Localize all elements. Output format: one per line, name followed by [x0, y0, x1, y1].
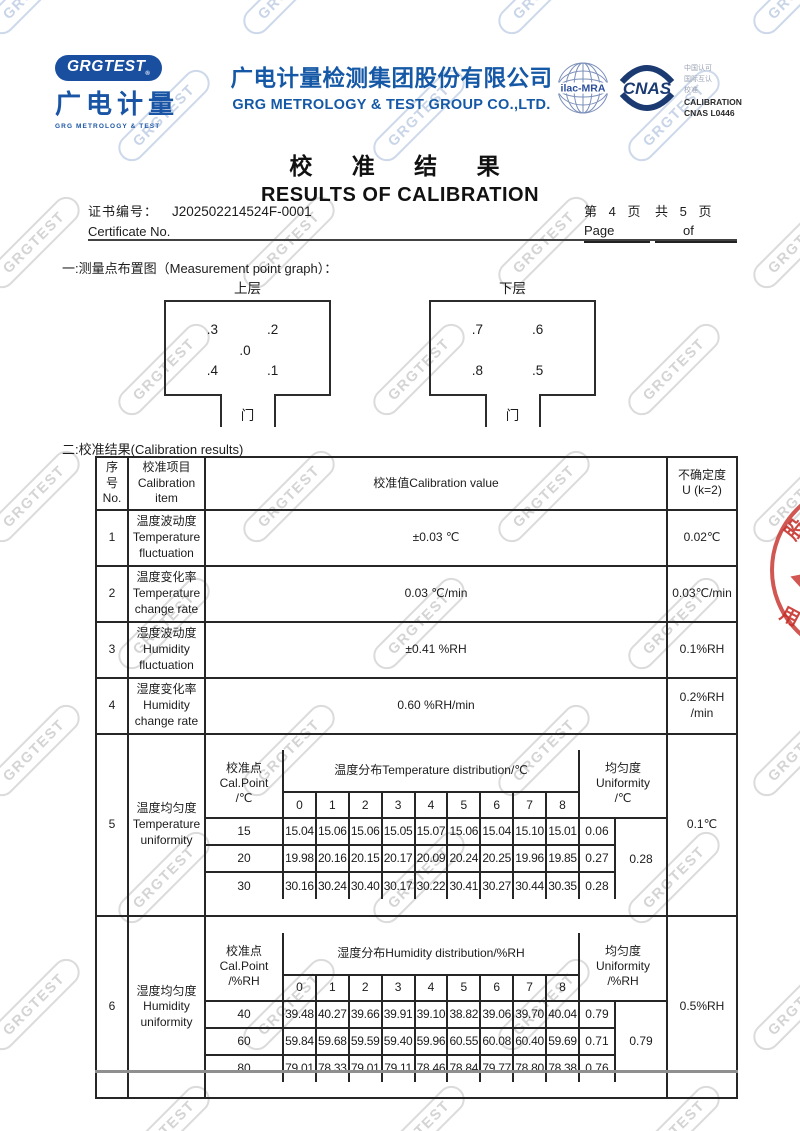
cnas-logo-icon: CNAS — [615, 61, 679, 115]
table-row: 4 湿度变化率 Humidity change rate 0.60 %RH/mi… — [96, 678, 737, 734]
point-index: 3 — [382, 975, 415, 1001]
distribution-header: 湿度分布Humidity distribution/%RH — [283, 933, 579, 975]
distribution-value-cell: 39.06 — [480, 1001, 513, 1028]
point-index: 7 — [513, 975, 546, 1001]
distribution-value-cell: 15.06 — [316, 818, 349, 845]
nested-header-row: 校准点 Cal.Point /℃ 温度分布Temperature distrib… — [206, 750, 666, 792]
uncertainty-cell: 0.1%RH — [667, 622, 737, 678]
distribution-rows: 1515.0415.0615.0615.0515.0715.0615.0415.… — [206, 818, 666, 899]
cnas-number: CNAS L0446 — [684, 108, 742, 120]
calibration-certificate-page: GRGTESTGRGTESTGRGTESTGRGTESTGRGTESTGRGTE… — [0, 0, 800, 1131]
distribution-row: 1515.0415.0615.0615.0515.0715.0615.0415.… — [206, 818, 666, 845]
calibration-item-cell: 湿度波动度 Humidity fluctuation — [128, 622, 205, 678]
distribution-row: 3030.1630.2430.4030.1730.2230.4130.2730.… — [206, 872, 666, 899]
upper-layer-diagram: 上层 .3 .2 .0 .4 .1 门 — [164, 277, 331, 396]
distribution-value-cell: 20.24 — [447, 845, 480, 872]
accreditation-line2: 国际互认 — [684, 74, 742, 85]
row-number-cell: 3 — [96, 622, 128, 678]
distribution-value-cell: 39.91 — [382, 1001, 415, 1028]
lower-layer-box: .7 .6 .8 .5 门 — [429, 300, 596, 396]
calibration-label: CALIBRATION — [684, 97, 742, 109]
certificate-label-en: Certificate No. — [88, 224, 312, 239]
certificate-number: J202502214524F-0001 — [172, 204, 312, 219]
door-label: 门 — [241, 404, 255, 424]
cal-point-value-cell: 15 — [206, 818, 283, 845]
distribution-value-cell: 15.07 — [415, 818, 448, 845]
table-header-row: 序 号 No. 校准项目 Calibration item 校准值Calibra… — [96, 457, 737, 510]
grgtest-badge-text: GRGTEST — [67, 58, 145, 75]
header-value: 校准值Calibration value — [205, 457, 667, 510]
point-index: 6 — [480, 975, 513, 1001]
humidity-uniformity-table: 校准点 Cal.Point /%RH 湿度分布Humidity distribu… — [206, 933, 666, 1082]
distribution-value-cell: 79.11 — [382, 1055, 415, 1082]
accreditation-text: 中国认可 国际互认 校准 CALIBRATION CNAS L0446 — [684, 61, 742, 120]
calibration-results-table: 序 号 No. 校准项目 Calibration item 校准值Calibra… — [95, 456, 738, 1099]
point-index: 7 — [513, 792, 546, 818]
certificate-number-block: 证书编号：J202502214524F-0001 Certificate No. — [88, 201, 312, 239]
calibration-item-cell: 湿度变化率 Humidity change rate — [128, 678, 205, 734]
point-index: 1 — [316, 975, 349, 1001]
cal-point-value-cell: 60 — [206, 1028, 283, 1055]
uncertainty-cell: 0.02℃ — [667, 510, 737, 566]
registered-mark: ® — [145, 71, 150, 77]
cal-point-header: 校准点 Cal.Point /℃ — [206, 750, 283, 818]
logo-cn-text: 广电计量 — [55, 84, 227, 121]
lower-layer-label: 下层 — [429, 277, 596, 297]
distribution-value-cell: 30.41 — [447, 872, 480, 899]
point-index: 1 — [316, 792, 349, 818]
distribution-value-cell: 38.82 — [447, 1001, 480, 1028]
distribution-row: 2019.9820.1620.1520.1720.0920.2420.2519.… — [206, 845, 666, 872]
distribution-value-cell: 60.40 — [513, 1028, 546, 1055]
distribution-value-cell: 39.70 — [513, 1001, 546, 1028]
company-name-cn: 广电计量检测集团股份有限公司 — [227, 61, 556, 93]
point-index: 0 — [283, 792, 316, 818]
door-line-left — [220, 394, 222, 427]
point-index: 4 — [415, 975, 448, 1001]
measurement-point: .5 — [532, 363, 543, 378]
distribution-value-cell: 79.01 — [349, 1055, 382, 1082]
table-row: 1 温度波动度 Temperature fluctuation ±0.03 ℃ … — [96, 510, 737, 566]
distribution-value-cell: 15.04 — [480, 818, 513, 845]
grg-logo: GRGTEST® 广电计量 GRG METROLOGY & TEST — [55, 55, 227, 130]
page-label-en: Page — [584, 223, 650, 238]
point-index: 5 — [447, 792, 480, 818]
nested-header-row: 校准点 Cal.Point /%RH 湿度分布Humidity distribu… — [206, 933, 666, 975]
uniformity-header: 均匀度 Uniformity /%RH — [579, 933, 666, 1001]
measurement-point: .7 — [472, 322, 483, 337]
point-index: 3 — [382, 792, 415, 818]
measurement-point: .2 — [267, 322, 278, 337]
header-uncertainty: 不确定度 U (k=2) — [667, 457, 737, 510]
header-no: 序 号 No. — [96, 457, 128, 510]
calibration-item-cell: 温度变化率 Temperature change rate — [128, 566, 205, 622]
combined-uniformity-cell: 0.28 — [615, 818, 666, 899]
table-row: 2 温度变化率 Temperature change rate 0.03 ℃/m… — [96, 566, 737, 622]
cal-point-value-cell: 40 — [206, 1001, 283, 1028]
upper-layer-label: 上层 — [164, 277, 331, 297]
cal-point-value-cell: 80 — [206, 1055, 283, 1082]
uncertainty-cell: 0.03℃/min — [667, 566, 737, 622]
cnas-label: CNAS — [623, 79, 672, 98]
row-uniformity-cell: 0.76 — [579, 1055, 615, 1082]
company-name-en: GRG METROLOGY & TEST GROUP CO.,LTD. — [227, 97, 556, 113]
document-title: 校 准 结 果 RESULTS OF CALIBRATION — [0, 147, 800, 207]
calibration-item-cell: 温度均匀度 Temperature uniformity — [128, 734, 205, 916]
upper-layer-box: .3 .2 .0 .4 .1 门 — [164, 300, 331, 396]
distribution-value-cell: 20.09 — [415, 845, 448, 872]
distribution-row: 8079.0178.3379.0179.1178.4678.8479.7778.… — [206, 1055, 666, 1082]
point-index: 8 — [546, 975, 579, 1001]
measurement-point: .4 — [207, 363, 218, 378]
cal-point-value-cell: 30 — [206, 872, 283, 899]
distribution-value-cell: 39.66 — [349, 1001, 382, 1028]
page-number-cn: 第 4 页 — [584, 201, 650, 220]
distribution-value-cell: 15.04 — [283, 818, 316, 845]
distribution-value-cell: 15.05 — [382, 818, 415, 845]
cal-point-header: 校准点 Cal.Point /%RH — [206, 933, 283, 1001]
door-gap — [485, 394, 541, 396]
accreditation-line3: 校准 — [684, 85, 742, 96]
table-row: 5 温度均匀度 Temperature uniformity 校准点 Cal.P… — [96, 734, 737, 916]
distribution-value-cell: 60.08 — [480, 1028, 513, 1055]
table-row: 3 湿度波动度 Humidity fluctuation ±0.41 %RH 0… — [96, 622, 737, 678]
distribution-value-cell: 30.16 — [283, 872, 316, 899]
distribution-value-cell: 15.06 — [349, 818, 382, 845]
distribution-value-cell: 20.15 — [349, 845, 382, 872]
row-uniformity-cell: 0.06 — [579, 818, 615, 845]
row-uniformity-cell: 0.28 — [579, 872, 615, 899]
point-index: 2 — [349, 792, 382, 818]
page-total-cn: 共 5 页 — [655, 201, 737, 220]
calibration-item-cell: 温度波动度 Temperature fluctuation — [128, 510, 205, 566]
row-uniformity-cell: 0.79 — [579, 1001, 615, 1028]
calibration-value-cell: 0.03 ℃/min — [205, 566, 667, 622]
distribution-value-cell: 30.44 — [513, 872, 546, 899]
distribution-value-cell: 19.96 — [513, 845, 546, 872]
distribution-value-cell: 79.77 — [480, 1055, 513, 1082]
certificate-line: 证书编号：J202502214524F-0001 Certificate No.… — [88, 201, 737, 243]
header-rule — [88, 239, 737, 241]
distribution-value-cell: 39.48 — [283, 1001, 316, 1028]
distribution-value-cell: 78.38 — [546, 1055, 579, 1082]
page-segment: 第 4 页 Page — [584, 201, 650, 243]
page-number-block: 第 4 页 Page 共 5 页 of — [584, 201, 737, 243]
distribution-value-cell: 59.84 — [283, 1028, 316, 1055]
row-number-cell: 5 — [96, 734, 128, 916]
uncertainty-cell: 0.2%RH /min — [667, 678, 737, 734]
measurement-point: .1 — [267, 363, 278, 378]
certificate-label-cn: 证书编号： — [88, 204, 158, 219]
uniformity-header: 均匀度 Uniformity /℃ — [579, 750, 666, 818]
row-uniformity-cell: 0.71 — [579, 1028, 615, 1055]
distribution-value-cell: 30.24 — [316, 872, 349, 899]
of-label-en: of — [655, 223, 737, 238]
distribution-value-cell: 40.04 — [546, 1001, 579, 1028]
logo-en-text: GRG METROLOGY & TEST — [55, 123, 227, 130]
distribution-value-cell: 19.85 — [546, 845, 579, 872]
page-content: GRGTEST® 广电计量 GRG METROLOGY & TEST 广电计量检… — [0, 0, 800, 1131]
grgtest-badge: GRGTEST® — [55, 55, 162, 81]
row-number-cell: 2 — [96, 566, 128, 622]
point-index: 5 — [447, 975, 480, 1001]
row-number-cell: 1 — [96, 510, 128, 566]
door-line-left — [485, 394, 487, 427]
calibration-value-cell: 0.60 %RH/min — [205, 678, 667, 734]
uncertainty-cell: 0.1℃ — [667, 734, 737, 916]
measurement-point: .6 — [532, 322, 543, 337]
distribution-header: 温度分布Temperature distribution/℃ — [283, 750, 579, 792]
distribution-value-cell: 20.17 — [382, 845, 415, 872]
distribution-value-cell: 15.06 — [447, 818, 480, 845]
title-cn: 校 准 结 果 — [0, 147, 800, 181]
distribution-value-cell: 39.10 — [415, 1001, 448, 1028]
distribution-value-cell: 59.40 — [382, 1028, 415, 1055]
measurement-point: .3 — [207, 322, 218, 337]
distribution-value-cell: 30.40 — [349, 872, 382, 899]
calibration-value-cell: ±0.03 ℃ — [205, 510, 667, 566]
ilac-mra-logo-icon: ilac-MRA — [556, 61, 610, 115]
cal-point-value-cell: 20 — [206, 845, 283, 872]
point-index: 6 — [480, 792, 513, 818]
distribution-value-cell: 59.59 — [349, 1028, 382, 1055]
company-name-block: 广电计量检测集团股份有限公司 GRG METROLOGY & TEST GROU… — [227, 55, 556, 113]
section1-heading: 一:测量点布置图（Measurement point graph）： — [62, 258, 337, 277]
calibration-value-cell: ±0.41 %RH — [205, 622, 667, 678]
measurement-point: .0 — [239, 343, 250, 358]
row-uniformity-cell: 0.27 — [579, 845, 615, 872]
seal-star-icon — [788, 568, 800, 590]
header: GRGTEST® 广电计量 GRG METROLOGY & TEST 广电计量检… — [55, 55, 762, 130]
distribution-value-cell: 79.01 — [283, 1055, 316, 1082]
door-gap — [220, 394, 276, 396]
point-index: 2 — [349, 975, 382, 1001]
point-index: 0 — [283, 975, 316, 1001]
measurement-point: .8 — [472, 363, 483, 378]
distribution-value-cell: 30.27 — [480, 872, 513, 899]
distribution-value-cell: 20.16 — [316, 845, 349, 872]
temperature-uniformity-table: 校准点 Cal.Point /℃ 温度分布Temperature distrib… — [206, 750, 666, 899]
accreditation-line1: 中国认可 — [684, 63, 742, 74]
distribution-value-cell: 30.22 — [415, 872, 448, 899]
distribution-value-cell: 30.35 — [546, 872, 579, 899]
ilac-mra-label: ilac-MRA — [561, 83, 606, 95]
distribution-value-cell: 59.96 — [415, 1028, 448, 1055]
point-index: 8 — [546, 792, 579, 818]
door-line-right — [539, 394, 541, 427]
distribution-value-cell: 59.68 — [316, 1028, 349, 1055]
distribution-value-cell: 19.98 — [283, 845, 316, 872]
distribution-value-cell: 78.46 — [415, 1055, 448, 1082]
distribution-value-cell: 40.27 — [316, 1001, 349, 1028]
distribution-value-cell: 20.25 — [480, 845, 513, 872]
row-number-cell: 4 — [96, 678, 128, 734]
distribution-value-cell: 15.10 — [513, 818, 546, 845]
door-line-right — [274, 394, 276, 427]
header-item: 校准项目 Calibration item — [128, 457, 205, 510]
lower-layer-diagram: 下层 .7 .6 .8 .5 门 — [429, 277, 596, 396]
footer-rule — [95, 1070, 738, 1073]
distribution-value-cell: 78.80 — [513, 1055, 546, 1082]
distribution-row: 4039.4840.2739.6639.9139.1038.8239.0639.… — [206, 1001, 666, 1028]
distribution-row: 6059.8459.6859.5959.4059.9660.5560.0860.… — [206, 1028, 666, 1055]
point-index: 4 — [415, 792, 448, 818]
distribution-value-cell: 15.01 — [546, 818, 579, 845]
page-total-segment: 共 5 页 of — [655, 201, 737, 243]
door-label: 门 — [506, 404, 520, 424]
uniformity-table-cell: 校准点 Cal.Point /℃ 温度分布Temperature distrib… — [205, 734, 667, 916]
distribution-value-cell: 78.84 — [447, 1055, 480, 1082]
distribution-value-cell: 59.69 — [546, 1028, 579, 1055]
distribution-value-cell: 60.55 — [447, 1028, 480, 1055]
distribution-value-cell: 30.17 — [382, 872, 415, 899]
distribution-value-cell: 78.33 — [316, 1055, 349, 1082]
accreditation-block: ilac-MRA CNAS 中国认可 国际互认 校准 CALIBRATION C… — [556, 55, 762, 120]
